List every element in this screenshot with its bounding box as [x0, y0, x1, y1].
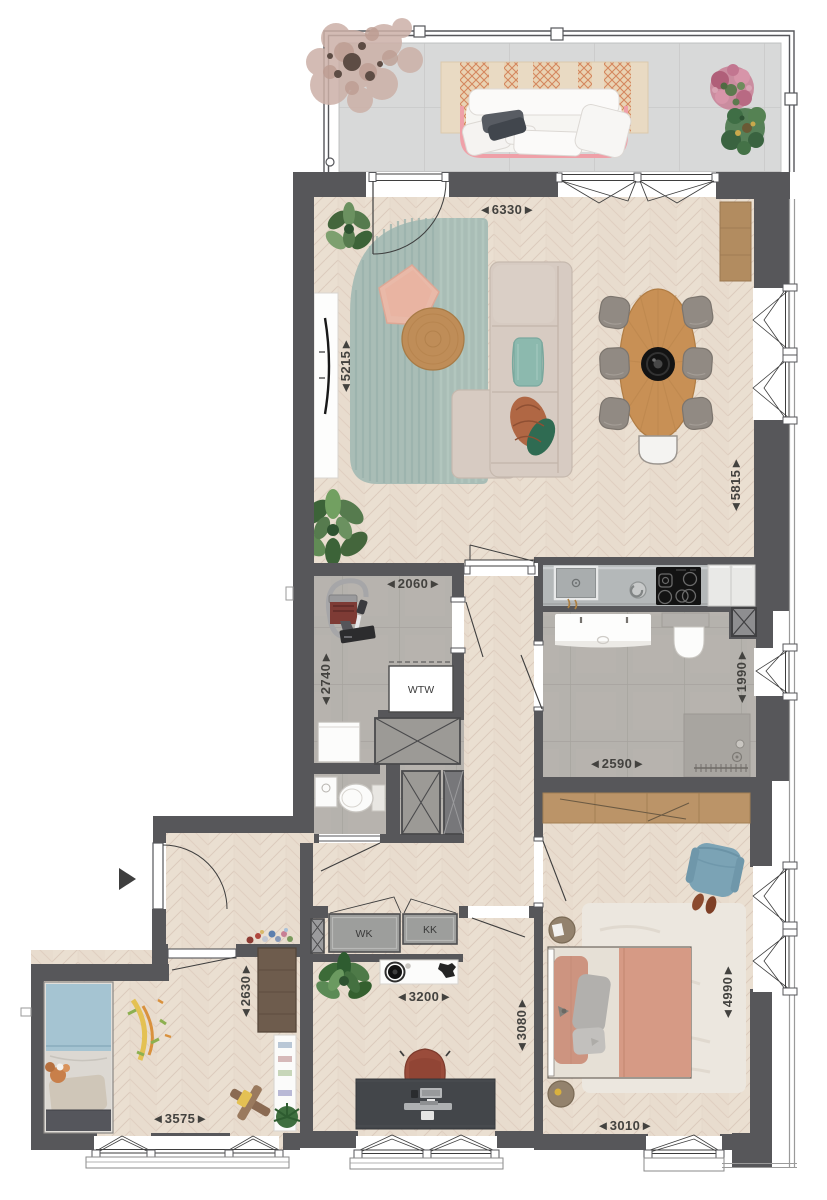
- svg-text:WTW: WTW: [408, 684, 434, 696]
- svg-text:◄4990►: ◄4990►: [720, 963, 735, 1020]
- svg-text:◄1990►: ◄1990►: [734, 648, 749, 705]
- svg-text:WK: WK: [356, 928, 373, 940]
- svg-text:◄3010►: ◄3010►: [596, 1118, 653, 1133]
- svg-text:◄2740►: ◄2740►: [318, 650, 333, 707]
- svg-text:◄2060►: ◄2060►: [384, 576, 441, 591]
- svg-text:◄2630►: ◄2630►: [238, 962, 253, 1019]
- svg-text:◄5815►: ◄5815►: [728, 456, 743, 513]
- svg-text:◄3575►: ◄3575►: [151, 1111, 208, 1126]
- svg-text:◄5215►: ◄5215►: [338, 337, 353, 394]
- svg-text:◄3200►: ◄3200►: [395, 989, 452, 1004]
- svg-text:◄6330►: ◄6330►: [478, 202, 535, 217]
- svg-text:KK: KK: [423, 924, 437, 936]
- svg-text:◄2590►: ◄2590►: [588, 756, 645, 771]
- svg-text:◄3080►: ◄3080►: [514, 996, 529, 1053]
